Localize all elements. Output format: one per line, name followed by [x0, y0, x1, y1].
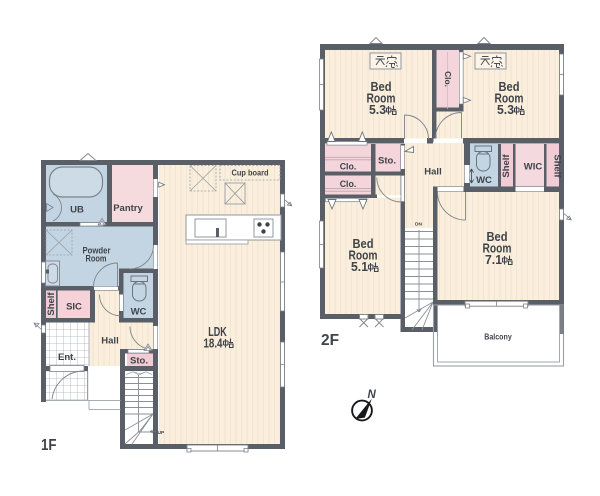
svg-text:UB: UB: [70, 205, 84, 216]
svg-text:Ent.: Ent.: [58, 352, 76, 363]
svg-text:WC: WC: [476, 175, 492, 186]
svg-text:18.4: 18.4: [204, 337, 223, 351]
svg-text:N: N: [368, 389, 377, 401]
svg-text:Room: Room: [86, 254, 107, 264]
svg-text:Cup board: Cup board: [232, 168, 269, 178]
svg-text:Sto.: Sto.: [130, 356, 148, 367]
svg-text:Balcony: Balcony: [484, 331, 512, 341]
svg-text:7.1: 7.1: [485, 253, 502, 267]
svg-text:Clo.: Clo.: [340, 162, 357, 172]
svg-text:SIC: SIC: [66, 302, 82, 313]
svg-text:Shelf: Shelf: [501, 154, 512, 178]
svg-text:Hall: Hall: [424, 167, 441, 178]
svg-text:Hall: Hall: [101, 336, 118, 347]
svg-text:WC: WC: [131, 307, 147, 318]
svg-text:2F: 2F: [321, 332, 339, 349]
svg-text:WIC: WIC: [524, 162, 543, 173]
svg-text:Sto.: Sto.: [378, 156, 396, 167]
svg-text:Shelf: Shelf: [46, 292, 57, 316]
svg-text:1F: 1F: [41, 437, 57, 454]
svg-text:5.1: 5.1: [351, 260, 368, 274]
svg-text:5.3: 5.3: [369, 103, 386, 117]
svg-text:Clo.: Clo.: [340, 179, 357, 189]
svg-text:Shelf: Shelf: [552, 154, 563, 178]
svg-text:Pantry: Pantry: [113, 203, 143, 214]
svg-text:UP: UP: [158, 430, 165, 436]
svg-text:Clo.: Clo.: [443, 71, 453, 87]
svg-text:5.3: 5.3: [497, 103, 514, 117]
svg-text:DN: DN: [415, 222, 422, 228]
